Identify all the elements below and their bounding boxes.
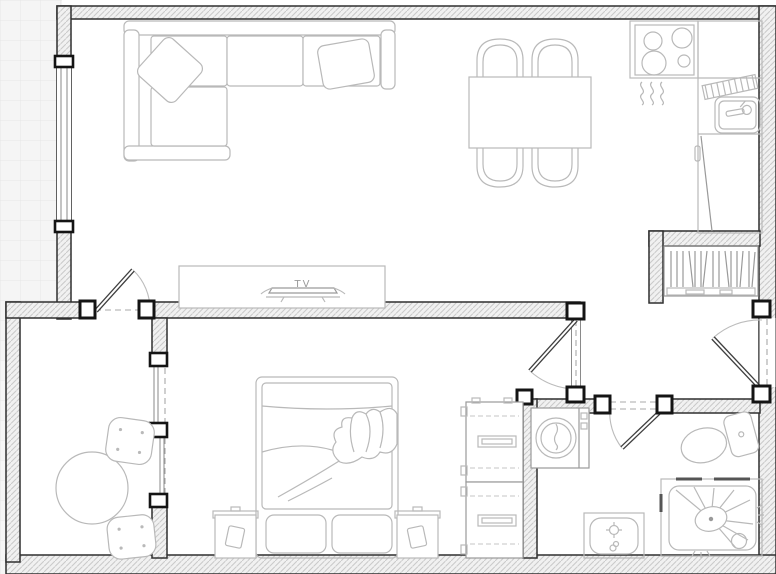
window-cap — [150, 353, 167, 366]
window-cap — [150, 494, 167, 507]
wardrobe-body — [466, 482, 523, 558]
stool[interactable] — [104, 416, 156, 466]
washing-machine[interactable] — [531, 408, 589, 468]
nightstand-body — [215, 515, 256, 558]
window-cap — [55, 56, 73, 67]
wardrobe-lower[interactable] — [461, 482, 523, 558]
floor-plan-canvas: TV — [0, 0, 776, 574]
tv-console-top — [179, 266, 385, 308]
wardrobe-body — [466, 402, 523, 482]
wall-balcony-left[interactable] — [6, 302, 20, 562]
wall-bathroom-top-right[interactable] — [659, 399, 760, 413]
window-cap — [55, 221, 73, 232]
door-jamb — [595, 396, 610, 413]
washer-body — [531, 408, 589, 468]
round-table[interactable] — [56, 452, 128, 524]
window-living-left[interactable] — [55, 56, 73, 232]
door-jamb — [657, 396, 672, 413]
wall-top[interactable] — [57, 6, 776, 19]
door-jamb — [80, 301, 95, 318]
nightstand-right[interactable] — [395, 507, 440, 558]
stool[interactable] — [106, 514, 157, 561]
sofa-backrest — [124, 21, 395, 35]
sofa-arm-right — [381, 30, 395, 89]
door-jamb — [567, 387, 584, 402]
door-jamb — [753, 301, 770, 317]
floor-plan: TV — [0, 0, 776, 574]
wall-alcove-left[interactable] — [649, 231, 663, 303]
bed-pillow — [332, 515, 392, 553]
throw-pillow-right[interactable] — [317, 38, 376, 90]
tv-console[interactable]: TV — [179, 266, 385, 308]
bed-pillow — [266, 515, 326, 553]
wardrobe-upper[interactable] — [461, 398, 523, 482]
nightstand-body — [397, 515, 438, 558]
dining-table[interactable] — [469, 77, 591, 148]
door-jamb — [139, 301, 154, 318]
door-jamb — [567, 303, 584, 319]
sofa-arm-left — [124, 30, 139, 161]
sofa-arm-chaise — [124, 146, 230, 160]
grid-area-left — [0, 0, 62, 316]
sofa-cushion — [227, 36, 303, 86]
door-jamb — [753, 386, 770, 402]
tv-screen — [269, 288, 337, 293]
window-opening — [57, 62, 71, 225]
nightstand-left[interactable] — [213, 507, 258, 558]
